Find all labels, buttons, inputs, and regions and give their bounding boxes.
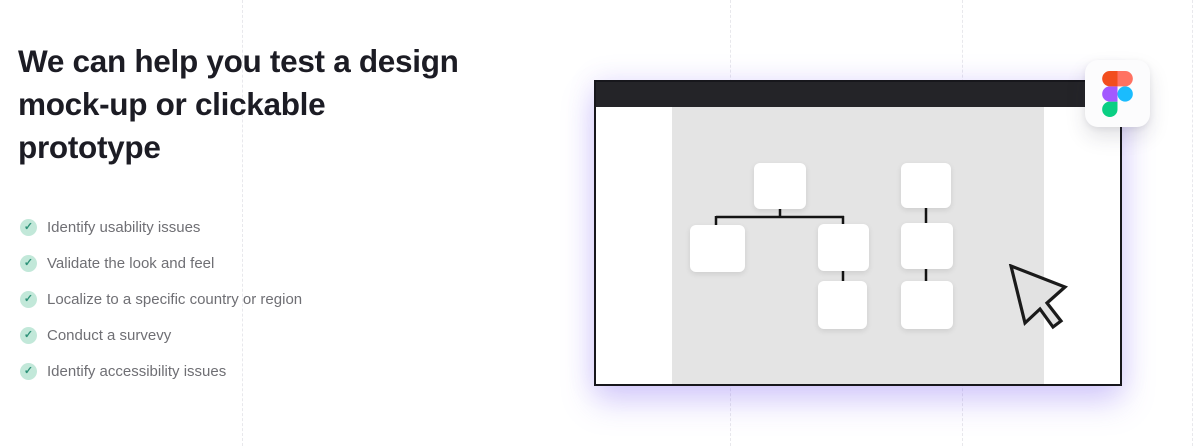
list-item: ✓ Identify usability issues — [20, 218, 440, 237]
check-circle-icon: ✓ — [20, 255, 37, 272]
background-guide-line — [1192, 0, 1193, 446]
benefits-checklist: ✓ Identify usability issues ✓ Validate t… — [20, 218, 440, 381]
check-circle-icon: ✓ — [20, 327, 37, 344]
browser-window — [594, 80, 1122, 386]
wireframe-box — [901, 223, 953, 269]
wireframe-box — [901, 281, 953, 329]
check-circle-icon: ✓ — [20, 219, 37, 236]
check-circle-icon: ✓ — [20, 291, 37, 308]
wireframe-box — [690, 225, 745, 272]
list-item-label: Identify accessibility issues — [47, 363, 226, 380]
page-title: We can help you test a design mock-up or… — [18, 40, 508, 169]
wireframe-box — [818, 224, 869, 271]
figma-card — [1085, 60, 1150, 127]
list-item-label: Validate the look and feel — [47, 255, 214, 272]
cursor-icon — [1008, 264, 1070, 335]
list-item-label: Localize to a specific country or region — [47, 291, 302, 308]
figma-icon — [1102, 71, 1133, 117]
wireframe-box — [754, 163, 806, 209]
check-circle-icon: ✓ — [20, 363, 37, 380]
list-item: ✓ Identify accessibility issues — [20, 362, 440, 381]
list-item: ✓ Conduct a survevy — [20, 326, 440, 345]
wireframe-box — [818, 281, 867, 329]
list-item: ✓ Localize to a specific country or regi… — [20, 290, 440, 309]
list-item-label: Conduct a survevy — [47, 327, 171, 344]
list-item-label: Identify usability issues — [47, 219, 200, 236]
list-item: ✓ Validate the look and feel — [20, 254, 440, 273]
wireframe-box — [901, 163, 951, 208]
